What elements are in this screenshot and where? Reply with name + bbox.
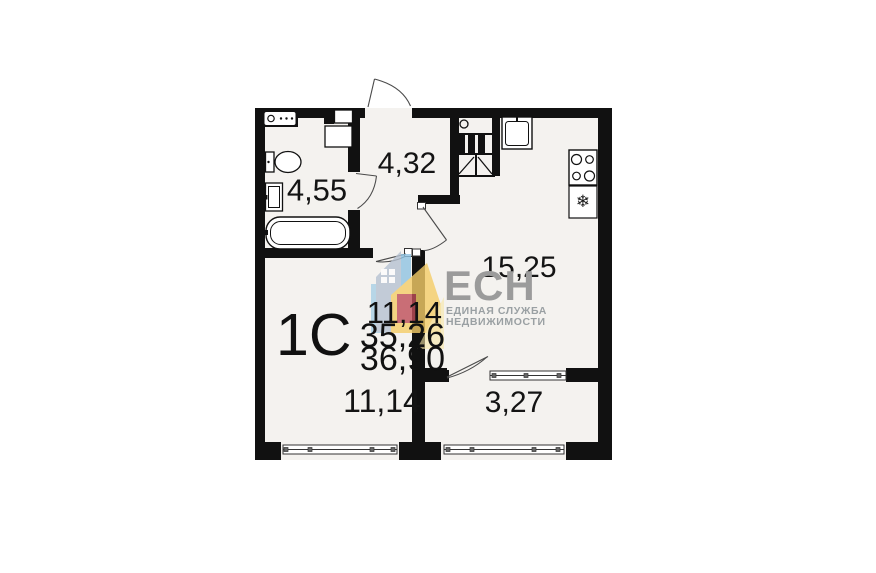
window-kitchen-balcony	[490, 371, 566, 380]
bathroom-area-label: 4,55	[287, 175, 347, 206]
snowflake-icon: ❄	[576, 192, 590, 212]
unit-type-label: 1С	[276, 306, 351, 365]
washing-machine-symbol	[262, 110, 298, 127]
bathtub-symbol	[264, 217, 350, 249]
toilet-symbol	[266, 152, 302, 173]
living-room-area-label: 11,14	[343, 385, 421, 417]
balcony-area-label: 3,27	[485, 388, 543, 418]
unit-total-area-label: 36,90	[360, 342, 445, 376]
window-balcony	[444, 445, 564, 454]
shelf-symbol	[324, 108, 353, 147]
floorplan-canvas: 4,55 4,32 15,25 11,14 3,27 1С 11,14 35,2…	[0, 0, 876, 573]
kitchen-sink-symbol	[502, 111, 532, 149]
bathroom-sink-symbol	[264, 183, 283, 211]
stove-symbol	[569, 150, 597, 185]
entrance-door	[368, 79, 411, 107]
floorplan-drawing	[0, 0, 876, 573]
logo-tagline-line2: НЕДВИЖИМОСТИ	[446, 317, 546, 328]
window-living-room	[283, 445, 397, 454]
logo-text: ЕСН	[444, 265, 536, 307]
hallway-area-label: 4,32	[378, 149, 436, 179]
